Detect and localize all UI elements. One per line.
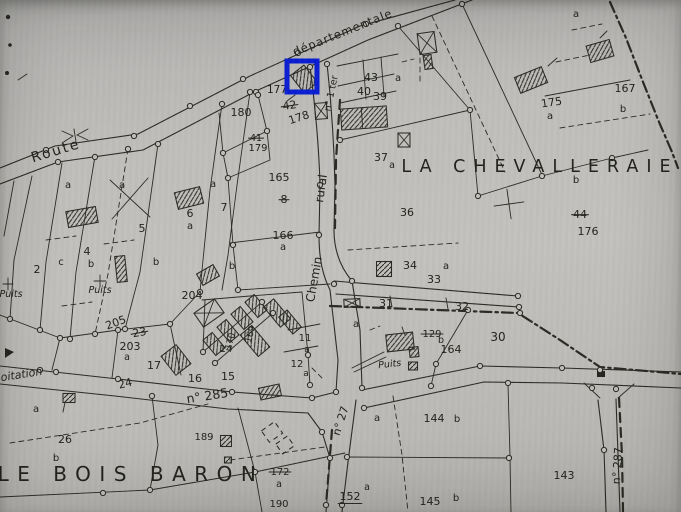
parcel-label: 37 <box>374 151 388 164</box>
parcel-label: 12 <box>291 359 304 370</box>
map-labels: LA CHEVALLERAIELE BOIS BARONRoutedéparte… <box>0 6 679 510</box>
parcel-label: a <box>573 9 579 20</box>
road-exploitation: oitation <box>0 365 43 384</box>
parcel-label: b <box>53 453 59 464</box>
parcel-label: 17 <box>147 359 161 372</box>
buildings <box>63 31 614 463</box>
section-boundary-lines <box>326 2 681 512</box>
parcel-label: b <box>153 257 159 268</box>
parcel-label: 204 <box>182 289 203 302</box>
place-le-bois-baron: LE BOIS BARON <box>0 462 264 486</box>
parcel-label: 4 <box>84 245 91 258</box>
survey-cross-icon <box>492 187 526 221</box>
parcel-label: a <box>276 479 282 490</box>
road-mark-24: 24 <box>117 376 134 392</box>
parcel-label: 167 <box>615 82 636 95</box>
parcel-label: a <box>33 404 39 415</box>
parcel-label: b <box>453 493 459 504</box>
parcel-label: 176 <box>578 225 599 238</box>
parcel-label: 177 <box>267 84 287 96</box>
parcel-label: 179 <box>248 143 267 154</box>
parcel-label: 189 <box>194 432 213 443</box>
road-n287: n° 287 <box>610 447 626 485</box>
parcel-label: a <box>395 73 401 84</box>
parcel-label: 36 <box>400 206 414 219</box>
parcel-label: 40 <box>357 85 371 98</box>
parcel-label: 164 <box>441 343 462 356</box>
survey-cross-icon <box>110 178 150 219</box>
ruin-dashed <box>276 436 294 454</box>
parcel-label: 165 <box>269 171 290 184</box>
parcel-label: b <box>620 104 626 115</box>
parcel-label: b <box>454 414 460 425</box>
parcel-label: a <box>210 179 216 190</box>
parcel-label: 152 <box>340 490 361 503</box>
parcel-lines-southeast <box>347 310 511 512</box>
parcel-label: a <box>547 111 553 122</box>
parcel-label: 33 <box>427 273 441 286</box>
parcel-label: 143 <box>554 469 575 482</box>
highlighted-building <box>291 65 318 93</box>
parcel-label: a <box>65 180 71 191</box>
parcel-label: 144 <box>424 412 445 425</box>
parcel-label: a <box>280 242 286 253</box>
parcel-label: 26 <box>58 433 72 446</box>
parcel-label: b <box>88 259 94 270</box>
parcel-label: 180 <box>231 106 252 119</box>
road-rural: rural <box>312 174 330 204</box>
parcel-label: a <box>187 221 193 232</box>
parcel-label: 5 <box>139 222 146 235</box>
parcel-label: a <box>389 160 395 171</box>
parcel-label: b <box>229 261 235 272</box>
parcel-label: b <box>573 175 579 186</box>
place-la-chevalleraie: LA CHEVALLERAIE <box>401 157 678 177</box>
parcel-label: a <box>303 369 309 379</box>
parcel-label: 175 <box>540 95 563 111</box>
parcel-label: 43 <box>364 71 378 84</box>
well-puits-3: Puits <box>378 358 402 371</box>
pennant-mark <box>5 348 14 358</box>
parcel-label: a <box>124 352 130 363</box>
well-puits-2: Puits <box>0 289 23 300</box>
parcel-label: 6 <box>187 207 194 220</box>
parcel-label: 190 <box>269 499 288 510</box>
parcel-label: a <box>353 319 359 330</box>
parcel-label: 34 <box>403 259 417 272</box>
road-n27: n° 27 <box>330 405 352 438</box>
parcel-label: a <box>304 345 310 355</box>
parcel-lines-south <box>0 396 345 512</box>
parcel-label: 11 <box>299 333 312 344</box>
road-chemin: Chemin <box>303 255 325 303</box>
road-departementale: départementale <box>291 6 395 59</box>
parcel-label: 166 <box>273 229 294 242</box>
parcel-label: a <box>443 261 449 272</box>
well-puits-1: Puits <box>88 285 111 296</box>
parcel-label: 203 <box>120 340 141 353</box>
flag-symbol <box>63 394 75 413</box>
parcel-label: 31 <box>379 297 393 310</box>
road-n285: n° 285 <box>185 385 229 406</box>
parcel-label: 39 <box>373 90 387 103</box>
road-n1ter: n° 1 ter <box>322 74 340 112</box>
east-road <box>362 366 681 408</box>
parcel-label: 30 <box>490 330 505 344</box>
ruin-dashed <box>261 422 282 443</box>
map-canvas: LA CHEVALLERAIELE BOIS BARONRoutedéparte… <box>0 0 681 512</box>
parcel-label: c <box>58 257 64 268</box>
chemin-n285-road <box>0 366 336 512</box>
cadastral-map: LA CHEVALLERAIELE BOIS BARONRoutedéparte… <box>0 0 681 512</box>
parcel-label: 32 <box>455 300 469 313</box>
scan-marks <box>5 15 27 80</box>
parcel-label: a <box>374 413 380 424</box>
parcel-label: 16 <box>188 372 202 385</box>
parcel-label: a <box>364 482 370 493</box>
parcel-label: 7 <box>221 201 228 214</box>
parcel-label: a <box>119 180 125 191</box>
parcel-label: 15 <box>221 370 235 383</box>
parcel-label: 2 <box>34 263 41 276</box>
parcel-label: 145 <box>420 495 441 508</box>
